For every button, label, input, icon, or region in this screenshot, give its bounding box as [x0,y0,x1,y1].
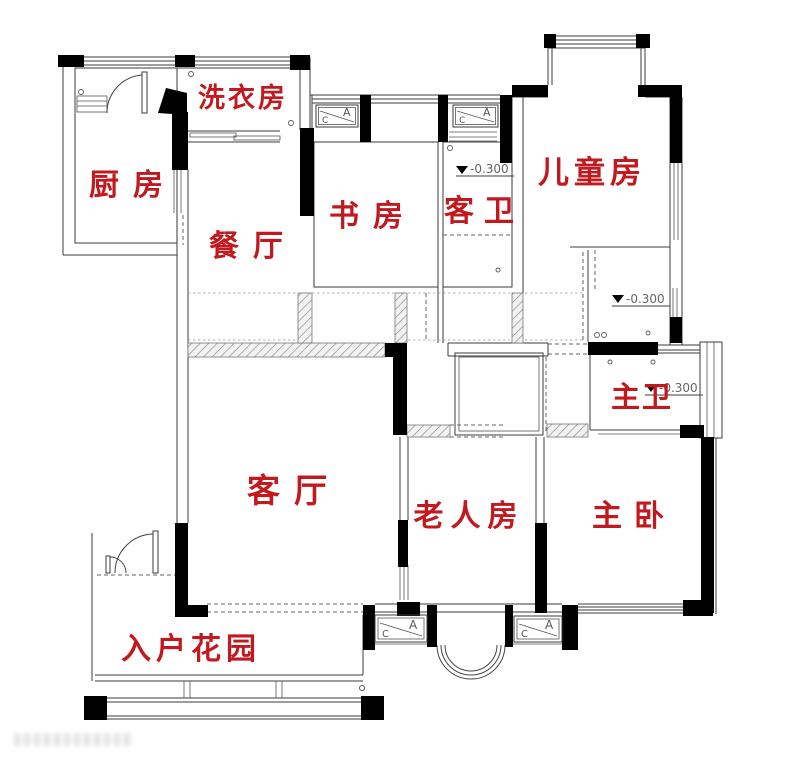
window-tag-letter-a: A [409,618,418,632]
window-tag-letter-a: A [545,618,554,632]
window-tag-guest-bath: C A [453,105,498,127]
room-label-kids-room: 儿童房 [538,155,646,190]
hatched-walls-layer [188,293,588,437]
entry-door-arc [115,534,153,573]
entry-door-small-leaf [106,556,110,573]
floor-plan-drawing: C A C A C A C A -0.300 -0.300 -0.300 [0,0,800,768]
window-tag-letter-c: C [521,629,528,640]
elevation-value: -0.300 [626,292,665,306]
window-tag-study: C A [316,105,358,127]
solid-walls-layer [58,34,714,720]
dashed-openings-layer [97,215,595,612]
doors-layer [106,72,158,573]
room-label-study: 书房 [329,200,417,233]
kitchen-door-leaf [142,72,147,113]
elevation-marker-guest-bath: -0.300 [456,162,514,176]
window-tag-letter-c: C [382,629,389,640]
room-label-entry-garden: 入户花园 [121,633,261,666]
room-label-master-bath: 主卫 [611,381,673,414]
room-label-master-bedroom: 主卧 [592,500,676,533]
watermark [14,733,134,746]
walls-lines-layer [58,36,722,719]
room-label-kitchen: 厨房 [89,169,177,202]
window-tag-letter-c: C [459,116,465,126]
elevation-value: -0.300 [470,162,509,176]
elevation-marker-closet: -0.300 [612,292,670,306]
entry-door-small-arc [110,557,126,573]
window-tag-letter-a: A [483,106,491,119]
room-label-dining: 餐厅 [209,230,297,263]
kitchen-door-arc [107,75,142,113]
room-label-living: 客厅 [247,472,341,510]
entry-door-leaf [153,531,158,573]
room-label-elder-room: 老人房 [414,500,525,533]
room-label-laundry: 洗衣房 [198,82,288,113]
floor-plan: C A C A C A C A -0.300 -0.300 -0.300 [0,0,800,768]
window-tag-letter-c: C [322,116,328,126]
room-label-guest-bath: 客卫 [444,194,524,228]
window-tag-south-right: C A [514,616,562,642]
window-tag-letter-a: A [343,106,351,119]
window-tag-south-left: C A [375,615,427,642]
